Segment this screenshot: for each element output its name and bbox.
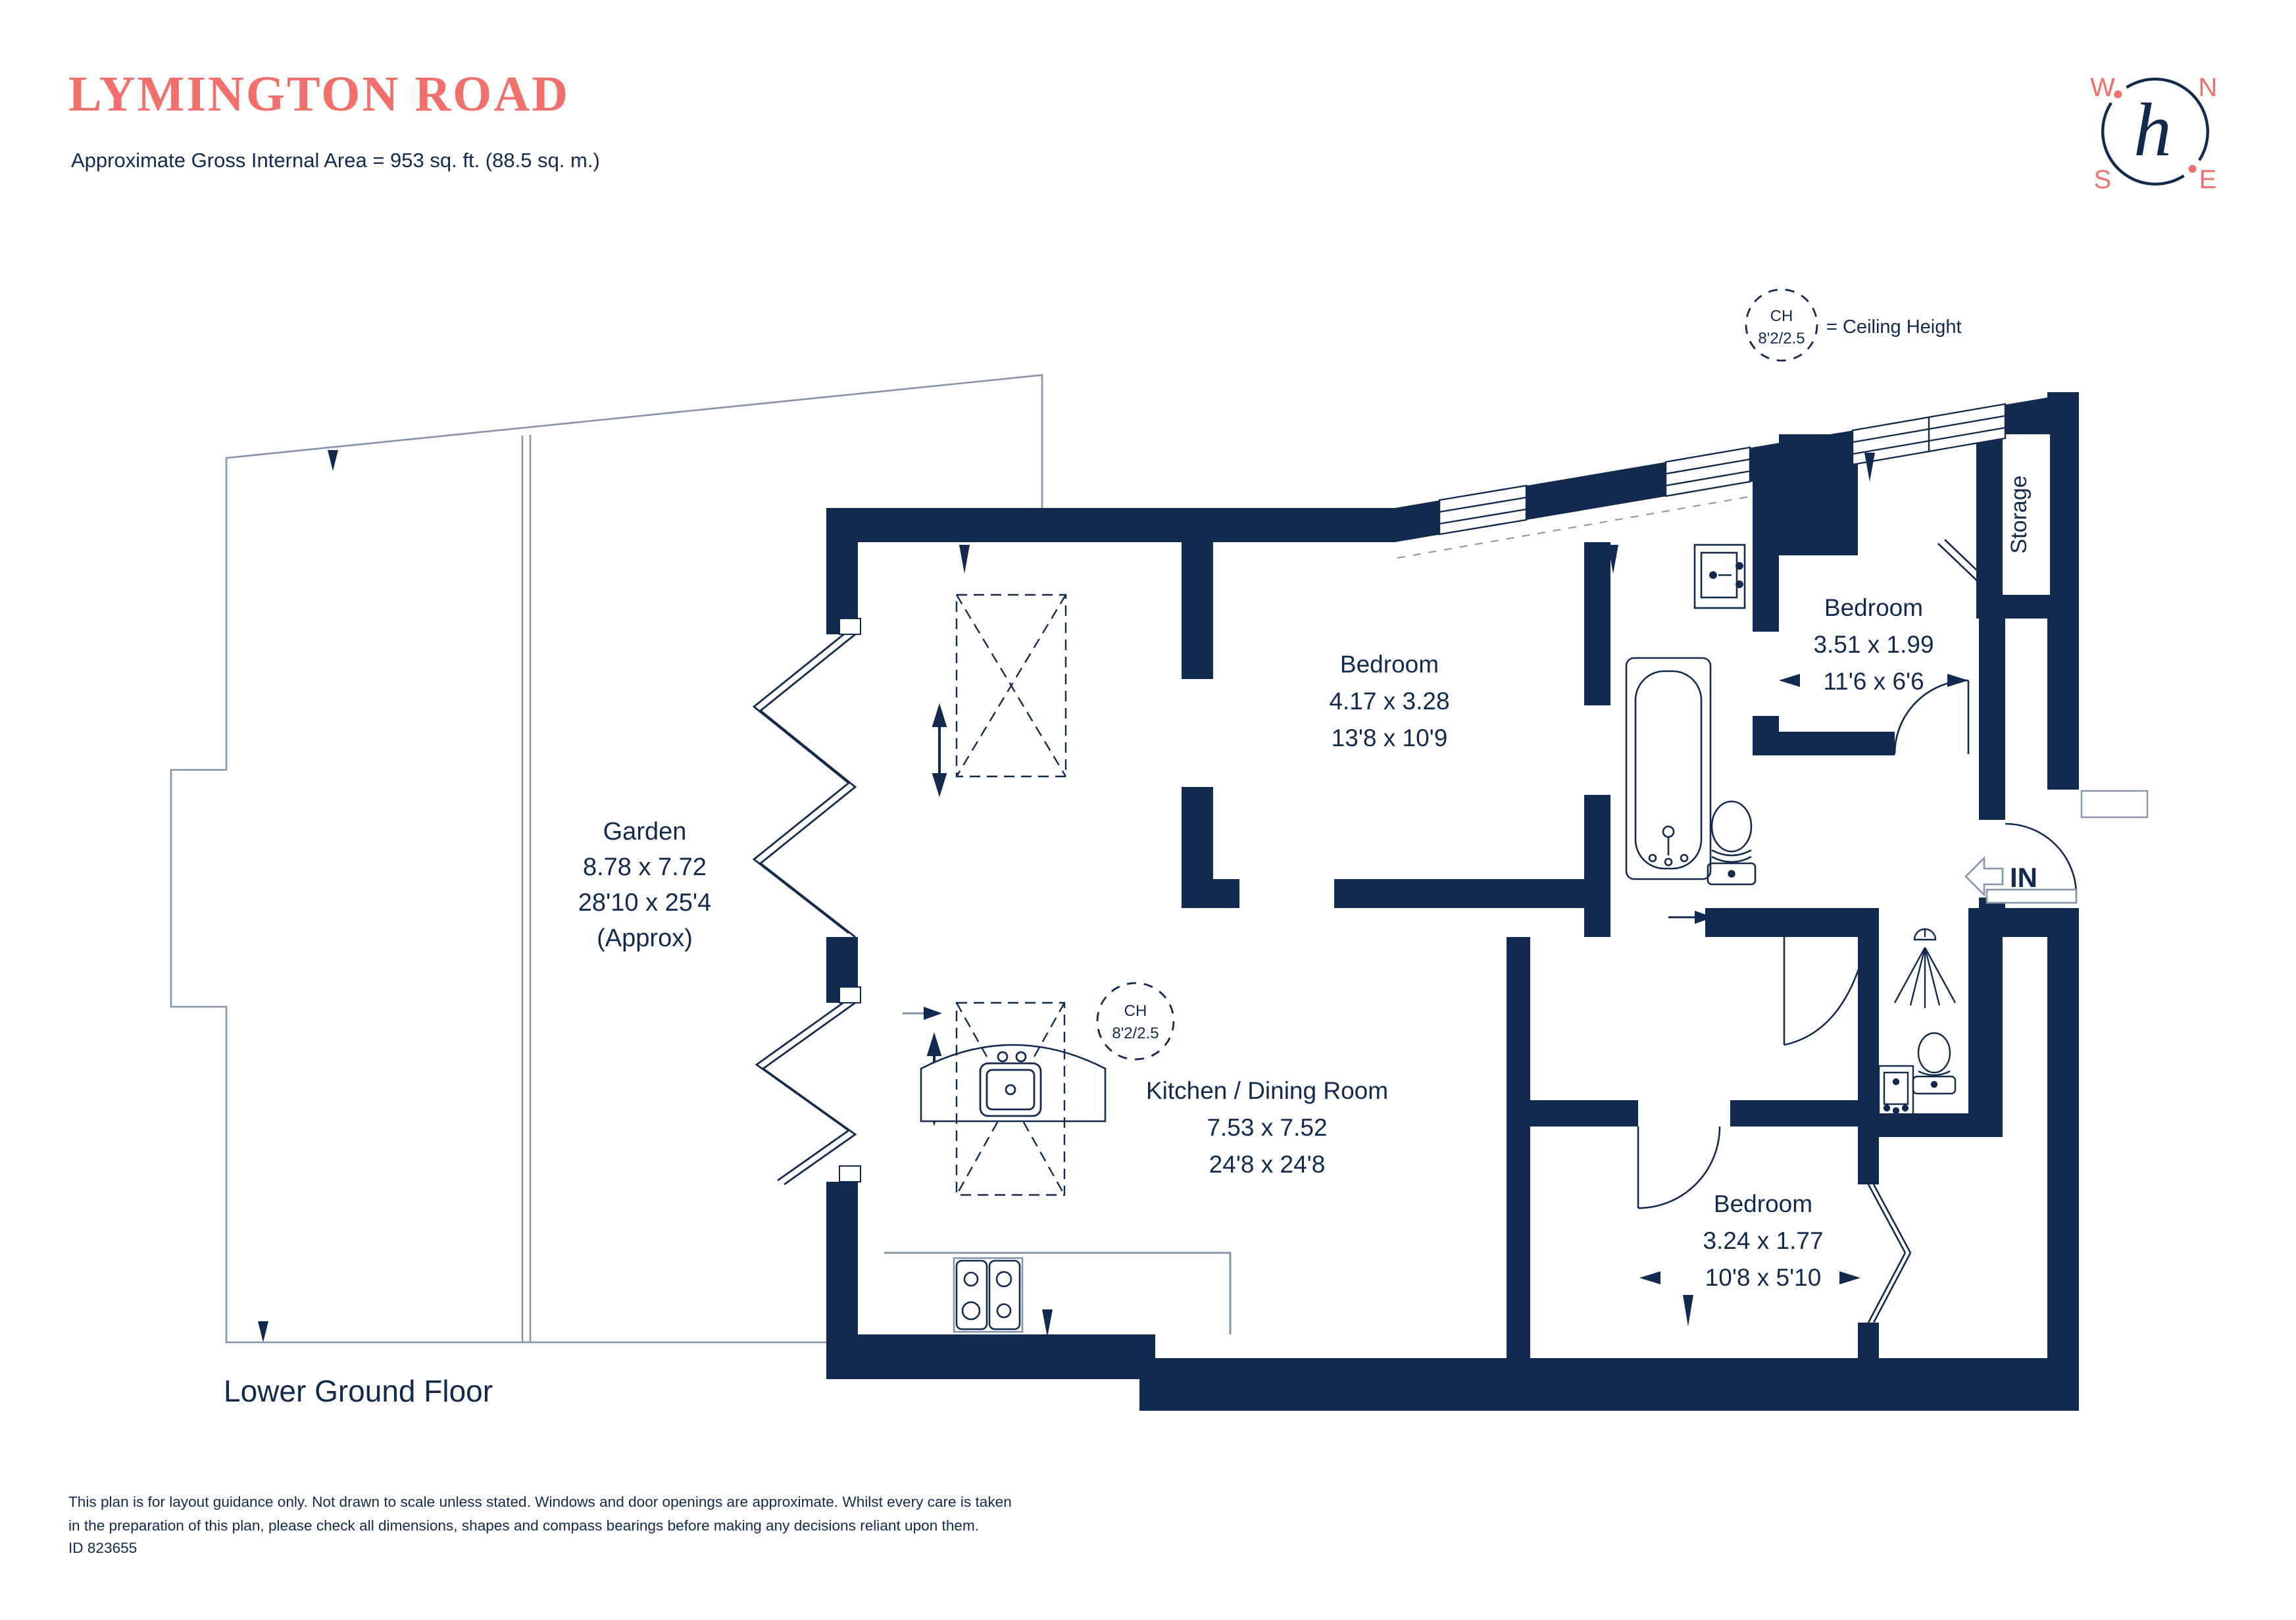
compass-n: N: [2199, 73, 2218, 102]
window-icon: [1666, 447, 1750, 496]
garden-tick-icon: [258, 1321, 268, 1342]
compass-monogram: h: [2134, 88, 2172, 172]
windows: [1439, 404, 2005, 534]
door-hinge-boxes: [839, 619, 861, 1182]
bifold-door-lower-icon: [757, 999, 855, 1184]
toilet-icon: [1708, 801, 1755, 884]
room-note: (Approx): [597, 924, 693, 952]
compass-icon: W N S E h: [2090, 73, 2217, 194]
room-label-bedroom-second: Bedroom 3.51 x 1.99 11'6 x 6'6: [1813, 594, 1934, 695]
skylight-upper: [957, 595, 1066, 776]
room-dim-imperial: 24'8 x 24'8: [1209, 1151, 1326, 1178]
room-dim-metric: 8.78 x 7.72: [583, 853, 707, 881]
closet-double-doors: [1868, 1184, 1910, 1323]
room-name: Kitchen / Dining Room: [1146, 1077, 1388, 1104]
room-dim-metric: 7.53 x 7.52: [1207, 1114, 1327, 1141]
legend-label: = Ceiling Height: [1826, 316, 1962, 338]
bathroom-sink-icon: [1695, 545, 1745, 608]
compass-w: W: [2090, 73, 2115, 102]
room-label-garden: Garden 8.78 x 7.72 28'10 x 25'4 (Approx): [578, 818, 712, 952]
floorplan-svg: IN: [0, 0, 2296, 1620]
ceiling-height-legend: CH 8'2/2.5 = Ceiling Height: [1746, 290, 1962, 361]
bathtub-icon: [1626, 658, 1710, 879]
compass-dot: [2189, 165, 2197, 173]
room-label-storage: Storage: [2007, 475, 2032, 553]
room-name: Bedroom: [1824, 594, 1923, 621]
shower-toilet-icon: [1913, 1033, 1955, 1094]
room-dim-metric: 4.17 x 3.28: [1329, 688, 1449, 715]
room-dim-imperial: 11'6 x 6'6: [1823, 668, 1924, 695]
ch-marker-circle: CH 8'2/2.5: [1097, 983, 1174, 1059]
room-dim-imperial: 13'8 x 10'9: [1332, 724, 1448, 751]
room-label-kitchen: Kitchen / Dining Room 7.53 x 7.52 24'8 x…: [1146, 1077, 1388, 1178]
room-label-bedroom-main: Bedroom 4.17 x 3.28 13'8 x 10'9: [1329, 651, 1449, 751]
entry-step: [2082, 791, 2147, 817]
legend-ch-value: 8'2/2.5: [1758, 330, 1805, 347]
garden-tick-icon: [328, 450, 338, 471]
shower-icon: [1895, 929, 1955, 1008]
bedroom3-door-arc: [1638, 1126, 1720, 1208]
room-dim-imperial: 10'8 x 5'10: [1705, 1264, 1822, 1291]
legend-ch-abbr: CH: [1770, 307, 1793, 325]
bifold-door-upper-icon: [754, 630, 855, 937]
room-name: Bedroom: [1714, 1190, 1812, 1217]
room-dim-metric: 3.51 x 1.99: [1813, 631, 1934, 658]
window-icon: [1439, 486, 1526, 534]
room-name: Garden: [603, 818, 687, 846]
room-dim-metric: 3.24 x 1.77: [1703, 1227, 1823, 1254]
stove-icon: [954, 1258, 1022, 1332]
compass-dot: [2114, 90, 2122, 98]
kitchen-counter: [884, 1253, 1230, 1334]
room-label-bedroom-third: Bedroom 3.24 x 1.77 10'8 x 5'10: [1703, 1190, 1823, 1291]
entrance-label: IN: [2010, 862, 2037, 893]
vestibule-door-arc: [1784, 937, 1866, 1045]
shower-sink-icon: [1879, 1066, 1913, 1116]
floorplan-page: LYMINGTON ROAD Approximate Gross Interna…: [0, 0, 2296, 1620]
compass-e: E: [2199, 165, 2217, 194]
compass-s: S: [2094, 165, 2112, 194]
window-icon: [1853, 416, 1937, 465]
ch-marker-value: 8'2/2.5: [1112, 1025, 1159, 1042]
room-name: Bedroom: [1340, 651, 1439, 678]
garden-divider-line: [522, 435, 530, 1342]
room-dim-imperial: 28'10 x 25'4: [578, 889, 712, 917]
ch-marker-abbr: CH: [1124, 1002, 1147, 1020]
